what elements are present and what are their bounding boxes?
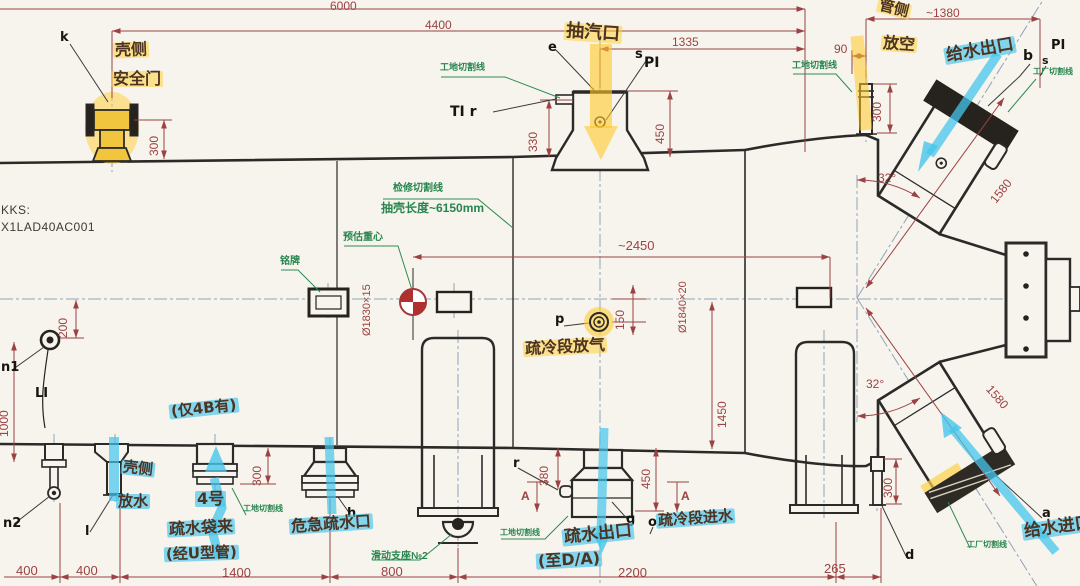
dim-angle-bot: 32° (866, 378, 884, 390)
note-overhaul-cut: 检修切割线 (393, 184, 443, 194)
note-via-u-pipe: (经U型管) (164, 545, 239, 563)
nozzle-b-feedwater-outlet (868, 80, 1019, 241)
dim-1400: 1400 (222, 566, 251, 579)
dim-300-d: 300 (882, 478, 894, 498)
note-site-cut-3: 工地切割线 (243, 505, 283, 513)
dim-150: 150 (614, 310, 626, 330)
note-steam-inlet: 抽汽口 (563, 22, 622, 44)
label-li: LI (35, 387, 48, 400)
dim-300-vent: 300 (871, 102, 883, 122)
nozzle-g-drain-outlet (560, 450, 632, 517)
label-ti-r: TI r (450, 105, 477, 119)
note-shell-drain-2: 放水 (116, 494, 150, 509)
note-safety-valve: 安全门 (111, 71, 163, 87)
dim-angle-top: 32° (878, 172, 896, 184)
label-l: l (85, 525, 89, 538)
dim-330: 330 (527, 132, 539, 152)
note-to-da: (至D/A) (536, 550, 603, 569)
note-nameplate: 铭牌 (280, 257, 300, 267)
drawing-linework (0, 0, 1080, 586)
dim-380: 380 (538, 466, 550, 486)
dim-4400: 4400 (425, 19, 452, 31)
engineering-drawing-feedwater-heater: KKS: X1LAD40AC001 6000 4400 1335 90 ~138… (0, 0, 1080, 586)
head-flange (1006, 243, 1080, 357)
dim-2450: ~2450 (618, 239, 655, 252)
note-site-cut-4: 工地切割线 (500, 529, 540, 537)
note-shell-drain-1: 壳侧 (120, 459, 155, 477)
dim-1000: 1000 (0, 410, 10, 437)
dim-400a: 400 (16, 564, 38, 577)
label-pi-top: PI (644, 56, 659, 70)
note-site-cut-2: 工地切割线 (792, 61, 837, 70)
label-r: r (513, 457, 519, 470)
dim-800: 800 (381, 565, 403, 578)
dim-400b: 400 (76, 564, 98, 577)
note-drain-bag-from: 疏水袋来 (167, 518, 236, 538)
note-factory-cut-2: 工厂切割线 (967, 541, 1007, 549)
note-vent: 放空 (880, 35, 917, 53)
centerlines (0, 0, 1080, 586)
label-e: e (548, 41, 557, 54)
label-k: k (60, 31, 69, 44)
dim-450-e: 450 (654, 124, 666, 144)
dim-90: 90 (834, 43, 847, 55)
note-dc-zone-vent: 疏冷段放气 (523, 337, 608, 357)
label-d: d (905, 549, 914, 562)
nameplate (309, 289, 348, 316)
dim-265: 265 (824, 562, 846, 575)
dim-300-k: 300 (148, 136, 160, 156)
note-no4: 4号 (195, 491, 226, 507)
kks-label: KKS: (1, 204, 30, 216)
dim-shell-od-right: Ø1840×20 (678, 281, 689, 333)
label-pi-right: PI (1051, 39, 1065, 52)
dim-2200: 2200 (618, 566, 647, 579)
note-shell-side: 壳侧 (113, 41, 150, 58)
dim-200: 200 (57, 318, 69, 338)
label-p: p (555, 313, 564, 326)
kks-code: X1LAD40AC001 (1, 221, 95, 233)
note-factory-cut-1: 工厂切割线 (1033, 68, 1073, 76)
dim-1335: 1335 (672, 36, 699, 48)
section-mark-a-right: A (681, 490, 690, 502)
dim-450-g: 450 (640, 469, 652, 489)
dim-1450: 1450 (716, 401, 728, 428)
cg-symbol (400, 268, 426, 340)
interior-boxes (437, 288, 831, 312)
note-sliding-support: 滑动支座№2 (371, 552, 428, 562)
label-s-right: s (1042, 55, 1049, 66)
safety-valve-k (85, 92, 139, 164)
dim-6000: 6000 (330, 0, 357, 12)
label-b: b (1023, 49, 1033, 63)
nozzle-n2 (42, 444, 66, 499)
note-site-cut-1: 工地切割线 (440, 63, 485, 72)
dim-1380: ~1380 (926, 7, 960, 19)
label-n1: n1 (1, 361, 19, 374)
section-mark-a-left: A (521, 490, 530, 502)
note-pull-length: 抽壳长度~6150mm (381, 202, 484, 214)
dim-shell-od-left: Ø1830×15 (362, 284, 373, 336)
note-estimated-cg: 预估重心 (343, 233, 383, 243)
dim-300-inlet: 300 (251, 466, 263, 486)
label-s-top: s (635, 48, 643, 61)
label-n2: n2 (3, 517, 21, 530)
n1-instrument (41, 331, 59, 428)
